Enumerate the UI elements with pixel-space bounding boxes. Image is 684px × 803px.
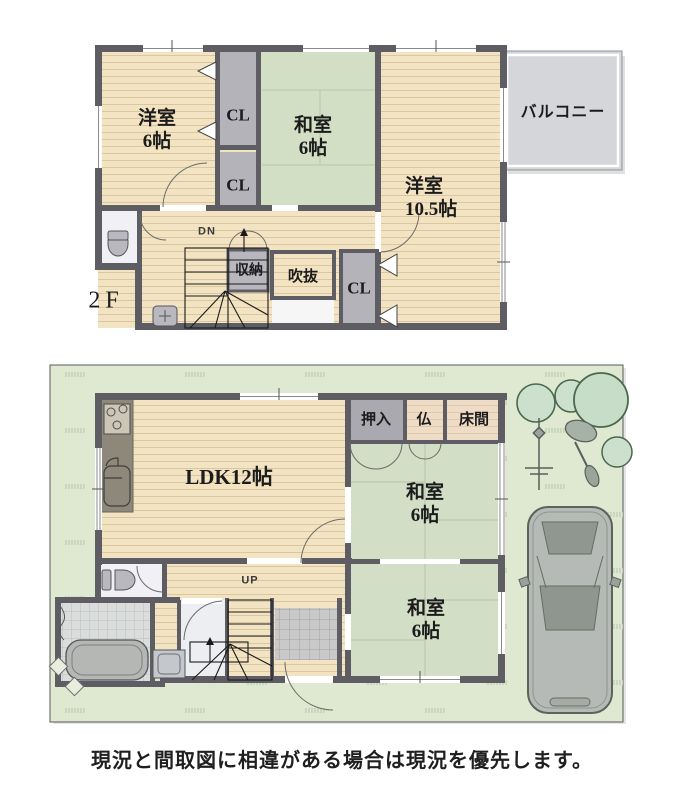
sink-icon	[153, 306, 177, 326]
toilet-icon-1f	[102, 570, 135, 590]
bathtub-icon	[66, 640, 148, 680]
room-label-cl-top: CL	[226, 106, 250, 127]
stairs-up-label: UP	[241, 574, 258, 587]
room-label-youshitsu105: 洋室10.5帖	[405, 175, 457, 221]
stove-icon	[104, 404, 130, 434]
room-label-washitsu-north: 和室6帖	[406, 481, 444, 527]
toilet-icon	[108, 231, 128, 256]
room-label-oshiire: 押入	[361, 411, 391, 429]
stairs-dn-label: DN	[198, 225, 216, 238]
kitchen-counter	[100, 399, 133, 512]
room-label-youshitsu6-2f: 洋室6帖	[138, 107, 176, 153]
room-label-ldk: LDK12帖	[185, 465, 273, 491]
washing-machine-icon	[153, 650, 185, 678]
floor1-site	[49, 365, 632, 724]
washroom-1f	[180, 600, 228, 678]
room-label-butsudan: 仏	[416, 411, 431, 429]
void-under	[272, 300, 334, 324]
genkan-tile	[275, 608, 337, 660]
floorplan-image: 洋室6帖 CL CL 和室6帖 洋室10.5帖 バルコニー DN 収納 吹抜 C…	[0, 0, 684, 803]
room-label-tokonoma: 床間	[459, 411, 489, 429]
room-label-cl-right: CL	[347, 279, 371, 300]
car-icon	[519, 507, 621, 713]
void-label: 吹抜	[288, 268, 318, 286]
room-label-washitsu6-2f: 和室6帖	[294, 114, 332, 160]
storage-label: 収納	[235, 262, 263, 279]
floor2-tag: 2F	[88, 286, 123, 315]
disclaimer-caption: 現況と間取図に相違がある場合は現況を優先します。	[0, 744, 684, 773]
closet-top-2f	[217, 49, 259, 147]
room-label-washitsu-south: 和室6帖	[407, 597, 445, 643]
balcony-label: バルコニー	[521, 103, 606, 123]
room-label-cl-mid: CL	[226, 176, 250, 197]
